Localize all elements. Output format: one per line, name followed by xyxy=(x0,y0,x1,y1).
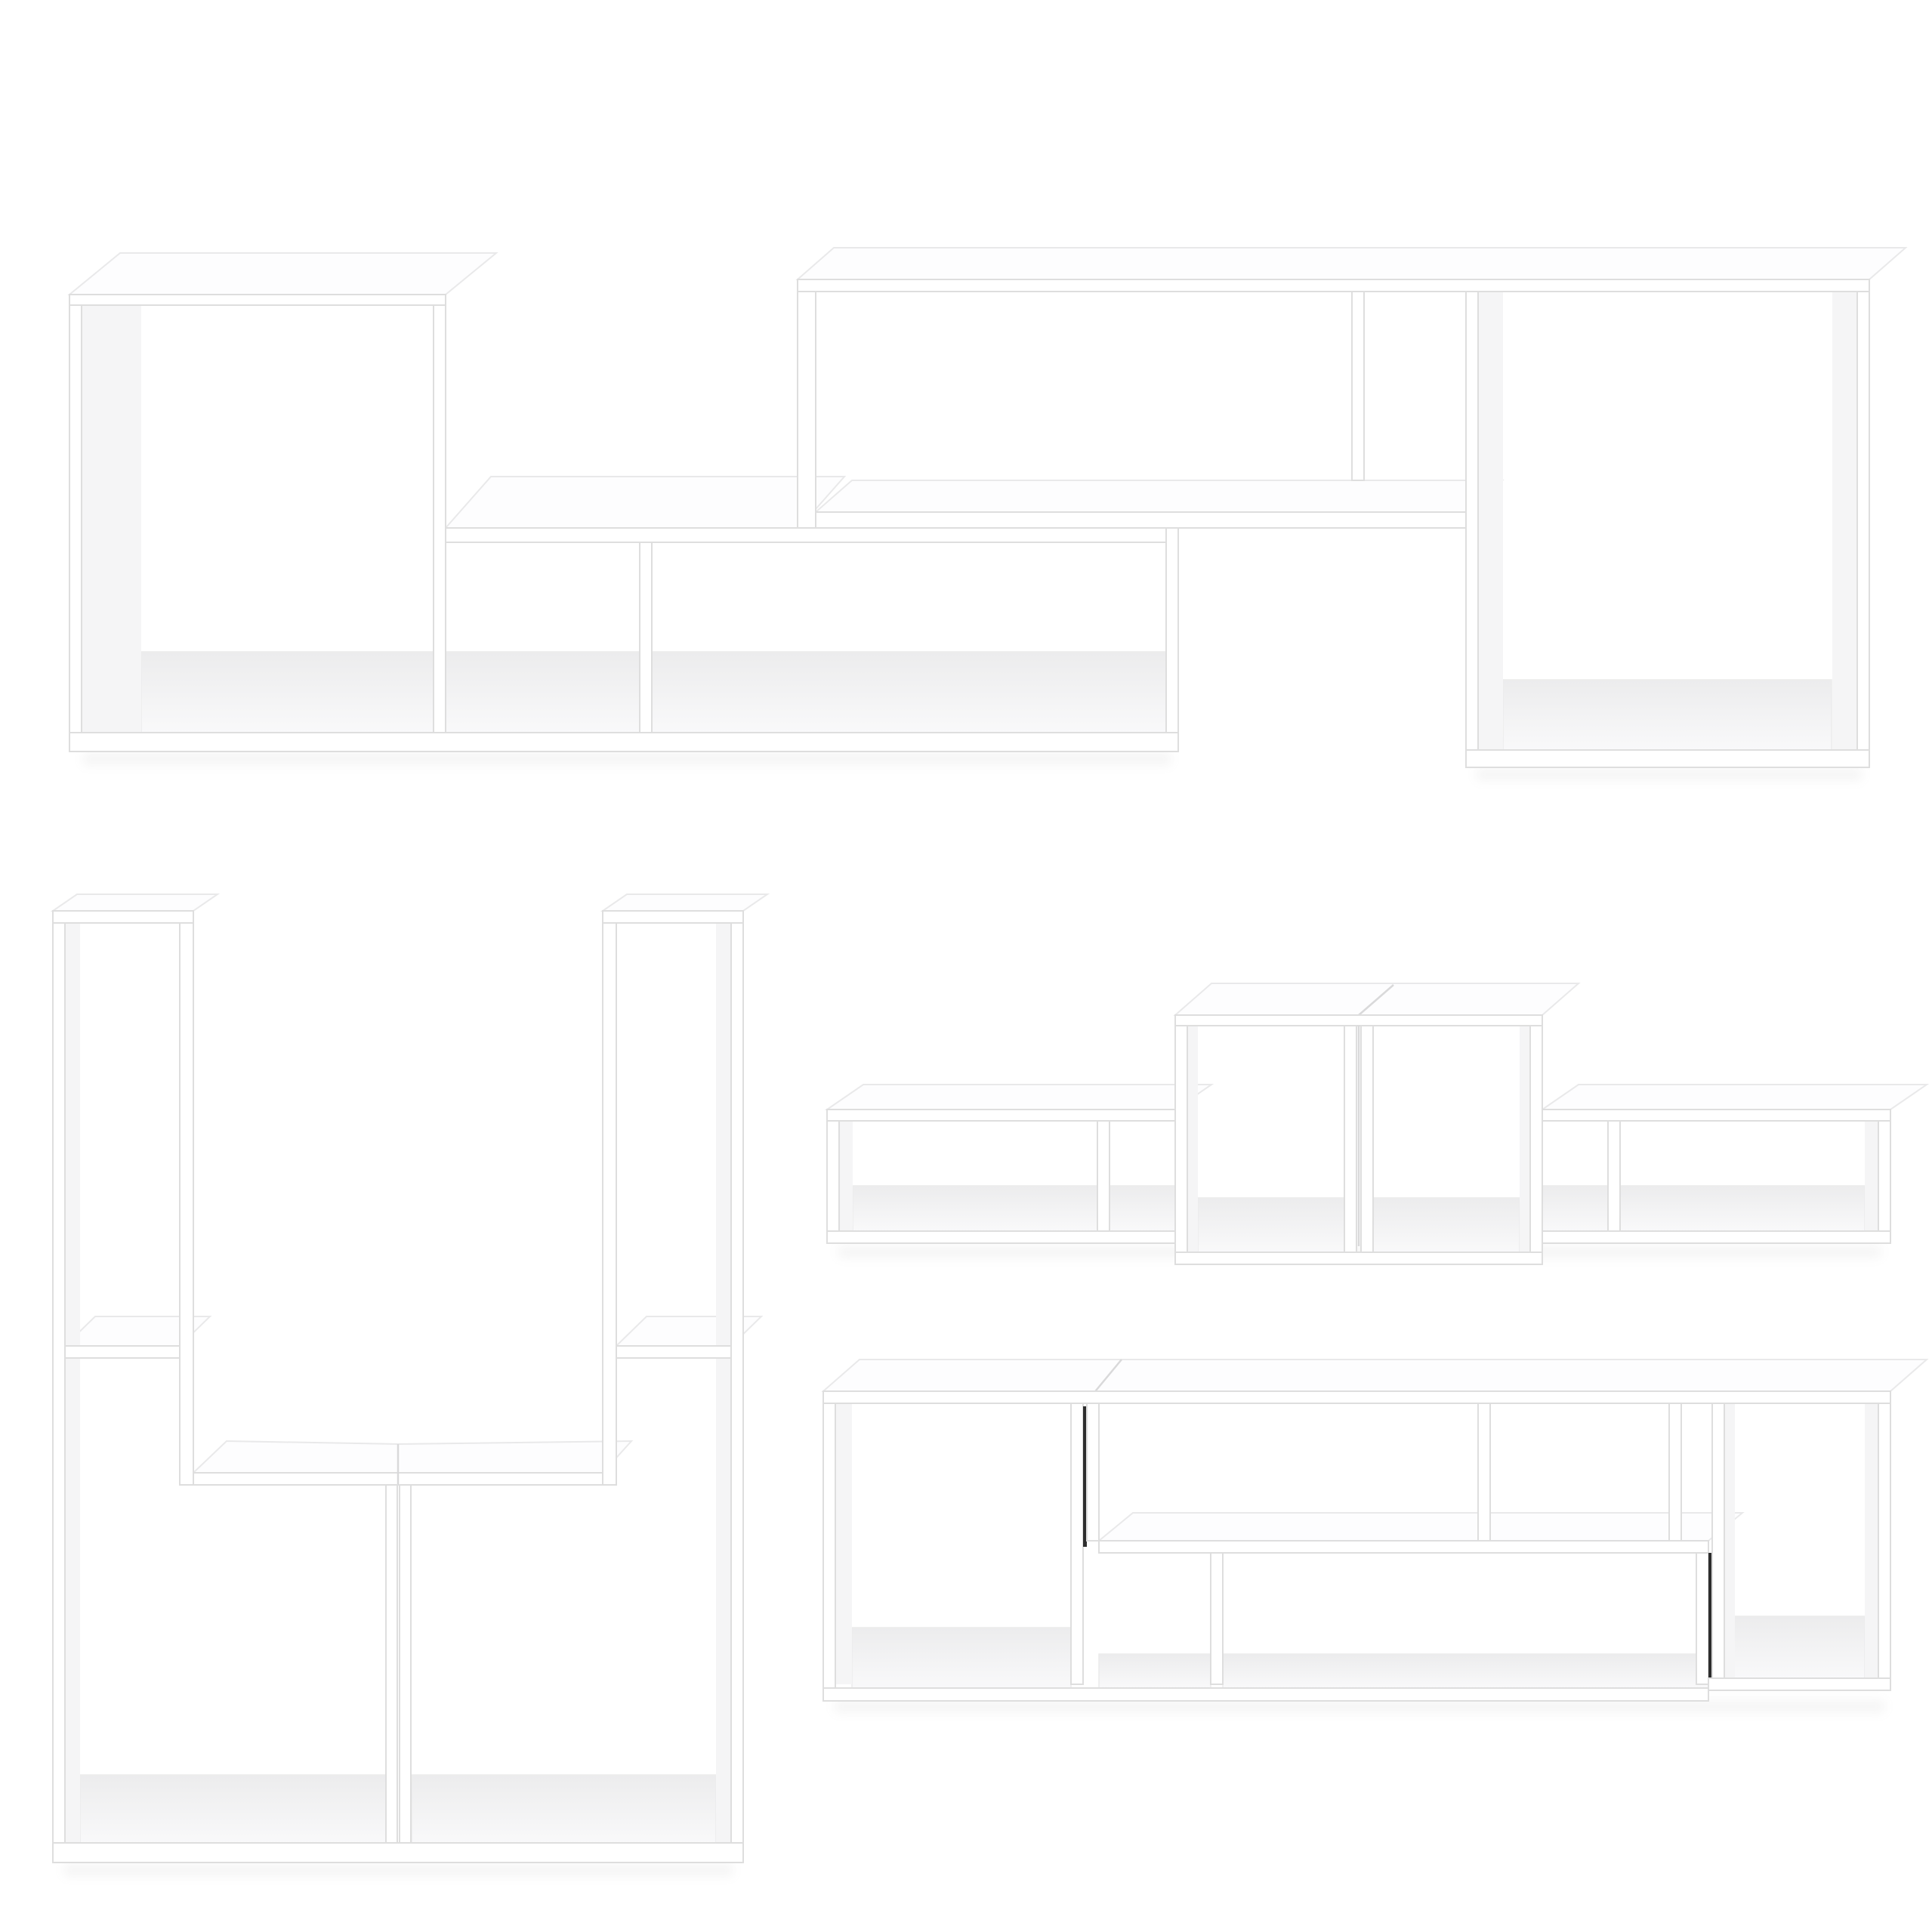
bottom-right-floor xyxy=(412,1775,716,1843)
right-box-floor xyxy=(1503,680,1832,750)
upper-middle-left-wall xyxy=(1087,1403,1099,1541)
figure-compact-s-unit xyxy=(823,1359,1927,1712)
center-shelf-right-top-face xyxy=(398,1441,631,1473)
top-face xyxy=(823,1359,1927,1391)
right-compartment-floor xyxy=(1724,1616,1865,1678)
left-outer-inner-face xyxy=(839,1121,853,1231)
lower-middle-left-floor xyxy=(1099,1654,1211,1688)
right-box-bottom-band xyxy=(1466,750,1869,767)
left-box-left-panel xyxy=(69,305,82,752)
s-shelf-band xyxy=(1099,1541,1708,1553)
right-inner-floor xyxy=(1542,1186,1608,1231)
left-small-shelf-band xyxy=(65,1346,180,1358)
tower-left-inner-face xyxy=(1187,1026,1198,1252)
left-column-top-band xyxy=(53,911,193,923)
middle-shelf-band xyxy=(446,528,1178,542)
left-panel-inner-face xyxy=(82,305,141,733)
right-column-top-band xyxy=(603,911,743,923)
center-divider-right xyxy=(400,1485,411,1843)
bottom-band-left xyxy=(823,1688,1708,1701)
lower-end-panel xyxy=(1166,528,1178,752)
right-outer-panel xyxy=(1878,1121,1890,1243)
tower-right-floor xyxy=(1373,1198,1520,1252)
right-wing-bottom-band xyxy=(1542,1231,1890,1243)
left-panel-inner-face xyxy=(65,923,80,1843)
middle-shelf-top-face xyxy=(446,477,844,528)
bottom-band xyxy=(69,733,1178,752)
upper-shelf-band xyxy=(816,512,1466,528)
right-wing-floor xyxy=(1620,1186,1865,1231)
right-box-left-wall xyxy=(1712,1403,1724,1684)
right-box-right-panel xyxy=(1857,292,1869,767)
shelf-end-panel xyxy=(798,292,816,528)
tower-right-inner-face xyxy=(1520,1026,1530,1252)
left-box-right-panel xyxy=(434,305,446,733)
right-outer-panel xyxy=(731,923,743,1863)
product-photo-canvas xyxy=(0,0,1932,1932)
right-top-shelf-top-face xyxy=(798,248,1906,279)
tower-left-floor xyxy=(1198,1198,1344,1252)
right-outer-inner-face xyxy=(1865,1403,1878,1678)
tower-right-inner-panel xyxy=(1361,1026,1373,1252)
left-section-floor xyxy=(141,652,1166,733)
left-wing-bottom-band xyxy=(827,1231,1175,1243)
right-column-top-face xyxy=(603,894,767,911)
left-compartment-right-wall xyxy=(1071,1403,1083,1684)
right-box-left-panel xyxy=(1466,292,1478,767)
left-compartment-floor xyxy=(852,1628,1071,1688)
tower-right-outer-panel xyxy=(1530,1026,1542,1252)
figure-tv-stand-long xyxy=(69,248,1906,780)
right-top-band xyxy=(798,279,1869,292)
shelf-configurations-illustration xyxy=(0,0,1932,1932)
left-wing-top-face xyxy=(827,1085,1211,1110)
left-outer-inner-face xyxy=(835,1403,852,1684)
right-wing-shelf-band xyxy=(1542,1110,1890,1121)
bottom-left-floor xyxy=(80,1775,386,1843)
left-inner-panel xyxy=(180,923,193,1485)
lower-divider xyxy=(640,542,652,733)
upper-shelf-top-face xyxy=(816,480,1502,512)
tower-left-outer-panel xyxy=(1175,1026,1187,1252)
left-wing-shelf-band xyxy=(827,1110,1175,1121)
left-wing-floor xyxy=(853,1186,1097,1231)
right-box-wall-inner-face xyxy=(1724,1403,1735,1678)
left-outer-panel xyxy=(823,1403,835,1698)
figure-tall-vertical-unit xyxy=(53,894,767,1876)
ground-shadow xyxy=(1477,769,1862,780)
s-shelf-top-face xyxy=(1099,1513,1742,1541)
ground-shadow xyxy=(835,1701,1884,1712)
left-outer-panel xyxy=(53,923,65,1863)
lower-middle-divider xyxy=(1211,1553,1223,1684)
right-inner-panel xyxy=(603,923,616,1485)
upper-middle-right-wall xyxy=(1669,1403,1681,1553)
right-box-right-inner-face xyxy=(1832,292,1857,750)
ground-shadow xyxy=(64,1864,733,1876)
upper-middle-divider xyxy=(1478,1403,1490,1541)
left-inner-floor xyxy=(1110,1186,1175,1231)
right-wing-top-face xyxy=(1542,1085,1927,1110)
left-wing-divider xyxy=(1097,1121,1110,1231)
tower-top-band xyxy=(1175,1015,1542,1026)
center-shelf-left-top-face xyxy=(193,1441,398,1473)
right-outer-panel xyxy=(1878,1403,1890,1690)
ground-shadow xyxy=(83,753,1171,765)
lower-middle-right-floor xyxy=(1223,1654,1708,1688)
step-end-panel xyxy=(1696,1553,1708,1684)
right-small-shelf-band xyxy=(616,1346,731,1358)
left-outer-panel xyxy=(827,1121,839,1243)
figure-podium-shelf xyxy=(827,983,1927,1264)
left-box-top-face xyxy=(69,253,496,295)
left-column-top-face xyxy=(53,894,218,911)
right-wing-divider xyxy=(1608,1121,1620,1231)
bottom-band-right xyxy=(1708,1678,1890,1690)
upper-divider xyxy=(1352,292,1364,480)
tower-left-inner-panel xyxy=(1344,1026,1356,1252)
right-outer-inner-face xyxy=(1865,1121,1878,1231)
top-band xyxy=(823,1391,1890,1403)
tower-bottom-band xyxy=(1175,1252,1542,1264)
center-divider-left xyxy=(386,1485,397,1843)
left-box-top-band xyxy=(69,295,446,305)
bottom-band xyxy=(53,1843,743,1863)
right-panel-inner-face xyxy=(716,923,731,1843)
right-box-left-inner-face xyxy=(1478,292,1503,750)
